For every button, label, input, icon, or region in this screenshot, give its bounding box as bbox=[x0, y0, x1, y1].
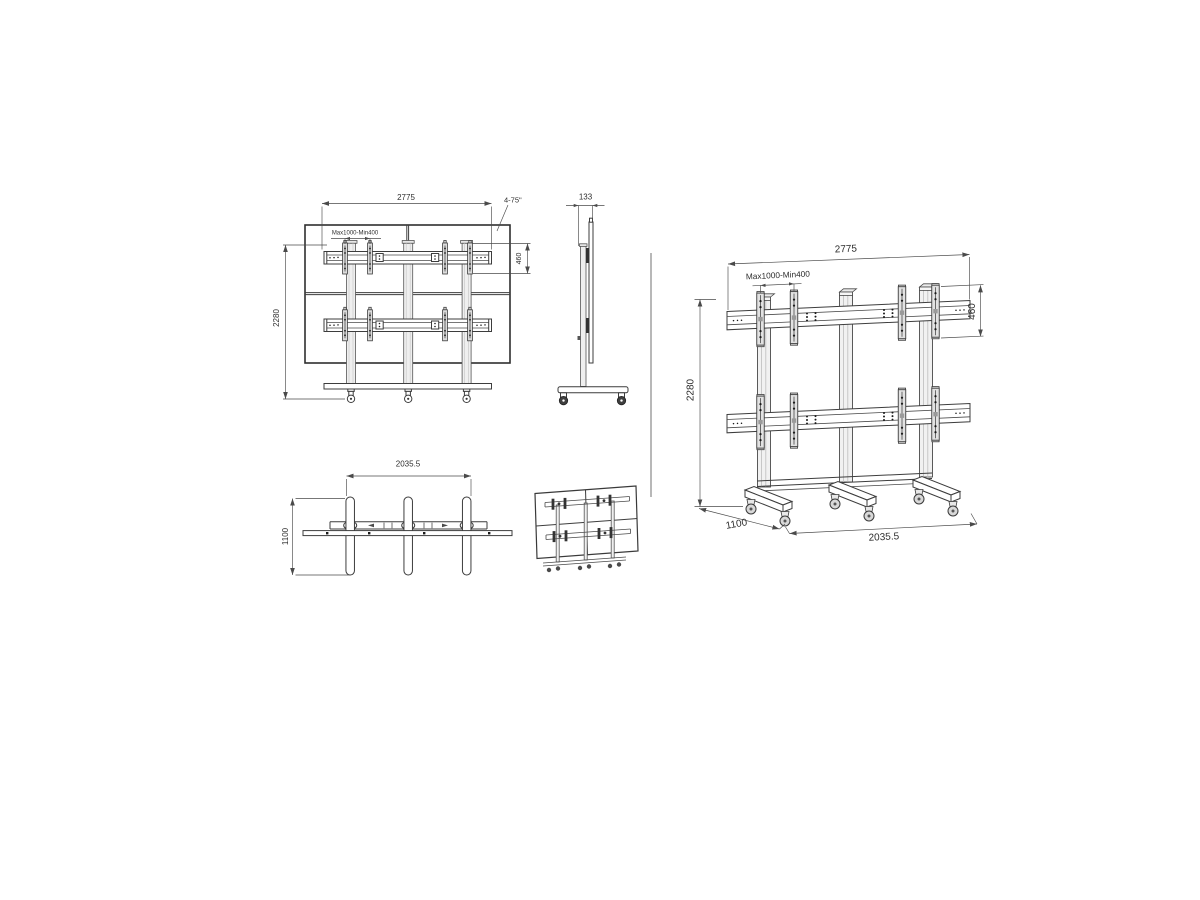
technical-drawing-canvas: 2775 4-75" Max1000-Min400 460 22 bbox=[0, 0, 1200, 900]
perspective-view: 2775 Max1000-Min400 460 2280 bbox=[686, 244, 984, 544]
side-pole bbox=[581, 246, 587, 386]
front-rail-bottom bbox=[324, 319, 492, 332]
persp-dim-vesa-label: Max1000-Min400 bbox=[746, 269, 811, 282]
persp-caster bbox=[948, 502, 958, 517]
persp-caster bbox=[746, 500, 756, 515]
front-rail-top bbox=[324, 252, 492, 265]
technical-drawing-page: 2775 4-75" Max1000-Min400 460 22 bbox=[0, 0, 1200, 900]
front-caster-left bbox=[347, 389, 354, 403]
front-caster-center bbox=[405, 389, 412, 403]
side-bracket-top bbox=[586, 248, 589, 263]
front-dim-bracket-height-label: 460 bbox=[516, 253, 523, 265]
persp-dim-base-width: 2035.5 bbox=[786, 514, 978, 544]
top-cross-plate bbox=[303, 531, 512, 536]
persp-dim-base-depth: 1100 bbox=[699, 509, 785, 532]
front-dim-total-height-label: 2280 bbox=[272, 309, 281, 327]
top-dim-base-width-label: 2035.5 bbox=[396, 460, 421, 469]
side-caster-rear bbox=[617, 393, 625, 405]
persp-dim-base-width-label: 2035.5 bbox=[868, 531, 900, 544]
top-dim-base-depth-label: 1100 bbox=[281, 527, 290, 545]
front-caster-right bbox=[463, 389, 470, 403]
persp-caster bbox=[864, 507, 874, 522]
front-dim-screen-range-label: 4-75" bbox=[504, 196, 522, 205]
persp-dim-width-label: 2775 bbox=[835, 244, 858, 256]
persp-caster bbox=[914, 490, 924, 505]
persp-dim-vesa: Max1000-Min400 bbox=[746, 269, 811, 293]
front-dim-width-label: 2775 bbox=[397, 193, 415, 202]
side-base-foot bbox=[558, 387, 628, 393]
top-view: 2035.5 1100 bbox=[281, 460, 512, 576]
top-dim-base-width: 2035.5 bbox=[347, 460, 472, 497]
front-dim-vesa-label: Max1000-Min400 bbox=[332, 231, 379, 237]
persp-caster bbox=[780, 512, 790, 527]
persp-dim-total-height-label: 2280 bbox=[686, 378, 697, 401]
isometric-thumbnail-view bbox=[535, 486, 638, 572]
side-dim-depth-label: 133 bbox=[579, 193, 593, 202]
persp-dim-total-height: 2280 bbox=[686, 300, 744, 507]
front-view: 2775 4-75" Max1000-Min400 460 22 bbox=[272, 193, 531, 403]
side-screen-slab bbox=[589, 222, 593, 363]
side-dim-depth: 133 bbox=[566, 193, 605, 247]
persp-caster bbox=[830, 495, 840, 510]
side-caster-front bbox=[559, 393, 567, 405]
side-bracket-bottom bbox=[586, 318, 589, 333]
front-base-bar bbox=[324, 384, 492, 390]
top-dim-base-depth: 1100 bbox=[281, 499, 350, 576]
side-view: 133 bbox=[558, 193, 628, 405]
persp-dim-base-depth-label: 1100 bbox=[725, 517, 749, 532]
persp-dim-bracket-height-label: 460 bbox=[967, 303, 978, 320]
